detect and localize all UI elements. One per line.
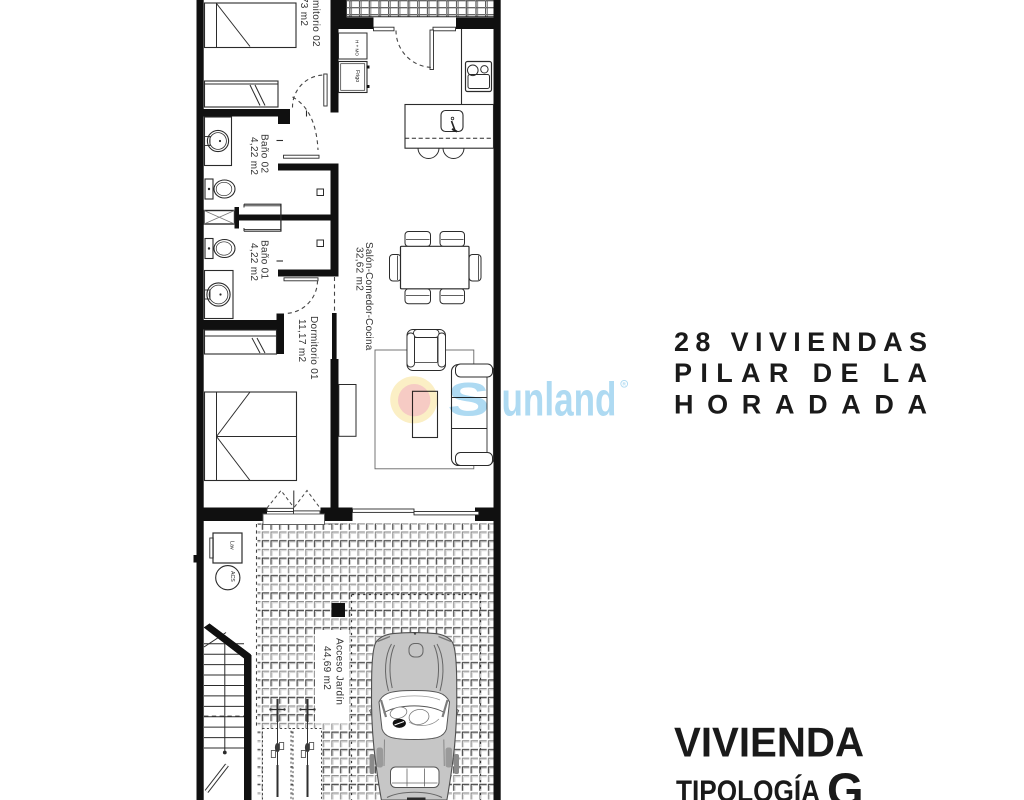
svg-text:8,73 m2: 8,73 m2 (298, 0, 309, 26)
svg-text:Acceso Jardín: Acceso Jardín (334, 638, 345, 705)
svg-text:Lav: Lav (229, 541, 235, 550)
svg-text:Baño 02: Baño 02 (259, 134, 270, 173)
svg-text:Baño 01: Baño 01 (259, 240, 270, 279)
svg-text:Dormitorio 02: Dormitorio 02 (310, 0, 321, 47)
svg-text:unland: unland (502, 374, 617, 427)
svg-text:4,22 m2: 4,22 m2 (248, 137, 259, 175)
svg-text:44,69 m2: 44,69 m2 (321, 646, 332, 690)
svg-text:32,62 m2: 32,62 m2 (354, 247, 365, 291)
svg-text:H + MO: H + MO (355, 40, 360, 56)
svg-text:11,17 m2: 11,17 m2 (296, 319, 307, 362)
svg-text:VIVIENDA: VIVIENDA (674, 719, 864, 766)
svg-text:Frigo: Frigo (354, 70, 360, 82)
svg-text:TIPOLOGÍA: TIPOLOGÍA (676, 774, 820, 800)
svg-text:4,22 m2: 4,22 m2 (248, 243, 259, 281)
svg-text:Dormitorio 01: Dormitorio 01 (308, 316, 319, 380)
svg-text:S: S (448, 374, 490, 427)
svg-text:G: G (827, 763, 864, 800)
svg-text:ACS: ACS (229, 571, 235, 582)
